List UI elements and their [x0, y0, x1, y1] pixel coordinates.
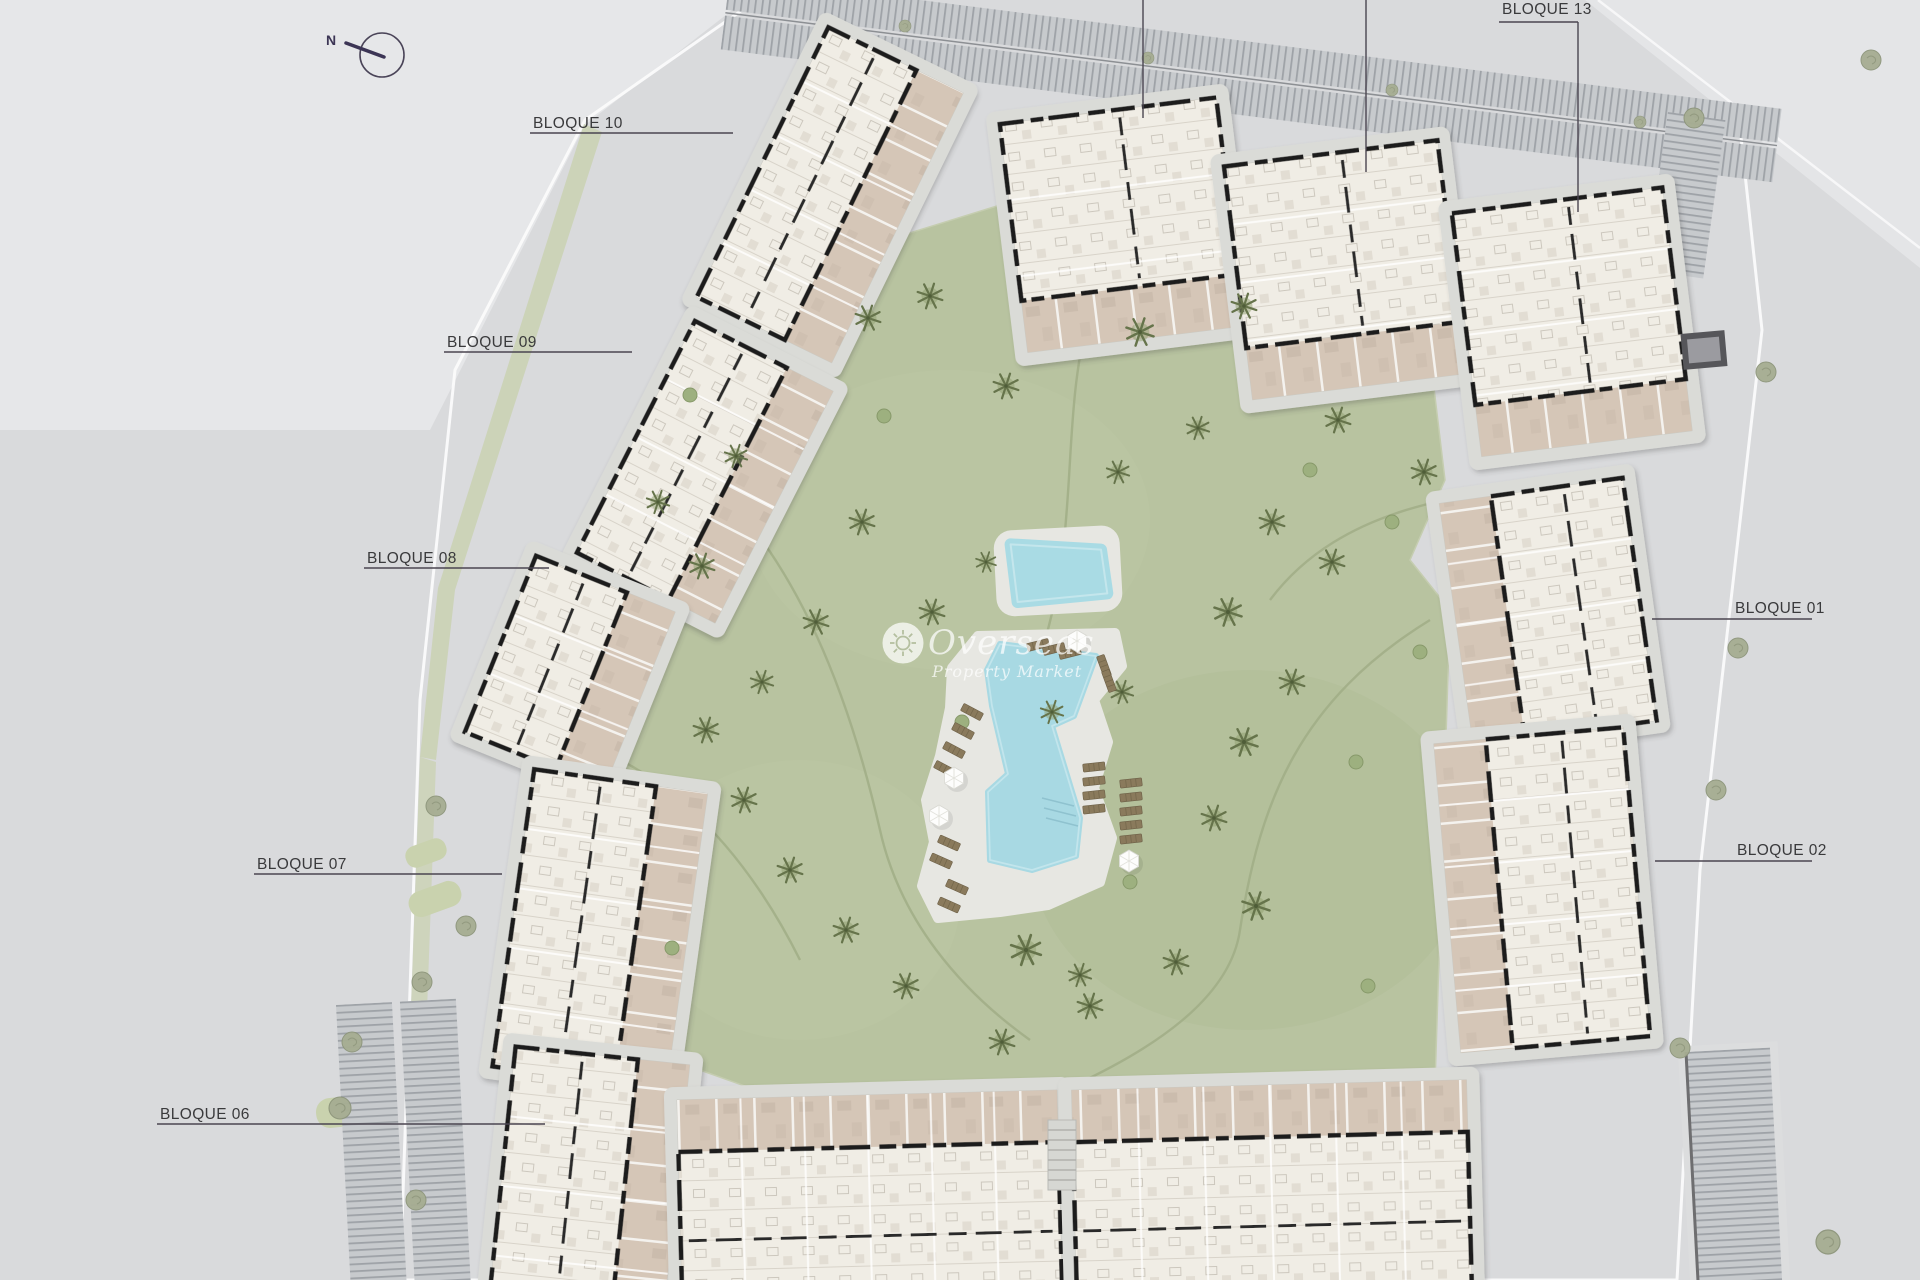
tree-icon	[426, 796, 446, 816]
tree-icon	[1756, 362, 1776, 382]
label-text-bloque-13: BLOQUE 13	[1502, 1, 1592, 18]
building-top-row-2	[1209, 126, 1480, 414]
tree-icon	[406, 1190, 426, 1210]
building-bloque-02	[1420, 713, 1664, 1067]
building-bloque-01	[1425, 463, 1672, 761]
bush-icon	[1303, 463, 1317, 477]
building-bottom-1	[664, 1077, 1077, 1280]
utility-structure	[1681, 330, 1728, 370]
label-text-bloque-01: BLOQUE 01	[1735, 600, 1825, 617]
tree-icon	[1670, 1038, 1690, 1058]
watermark-tagline: Property Market	[931, 662, 1082, 681]
label-text-bloque-10: BLOQUE 10	[533, 115, 623, 132]
tree-icon	[1386, 84, 1398, 96]
tree-icon	[342, 1032, 362, 1052]
building-top-row-1	[985, 83, 1258, 367]
tree-icon	[1142, 52, 1154, 64]
watermark-sun-icon	[883, 623, 924, 664]
parking-ramp-bottom-right	[1678, 1041, 1791, 1280]
small-pool	[993, 525, 1123, 617]
tree-icon	[1634, 116, 1646, 128]
tree-icon	[329, 1097, 351, 1119]
tree-icon	[1816, 1230, 1840, 1254]
site-plan-image: Overseas Property Market BLOQUE 13BLOQUE…	[0, 0, 1920, 1280]
tree-icon	[1684, 108, 1704, 128]
building-bottom-2	[1058, 1067, 1486, 1280]
bush-icon	[877, 409, 891, 423]
stairs-bottom-center	[1048, 1120, 1076, 1190]
bush-icon	[665, 941, 679, 955]
bush-icon	[1361, 979, 1375, 993]
building-bloque-13	[1437, 173, 1706, 471]
bush-icon	[1349, 755, 1363, 769]
watermark-brand: Overseas	[928, 623, 1095, 663]
bush-icon	[1413, 645, 1427, 659]
tree-icon	[1728, 638, 1748, 658]
label-text-bloque-09: BLOQUE 09	[447, 334, 537, 351]
tree-icon	[412, 972, 432, 992]
label-text-bloque-08: BLOQUE 08	[367, 550, 457, 567]
label-text-bloque-06: BLOQUE 06	[160, 1106, 250, 1123]
bush-icon	[1385, 515, 1399, 529]
compass-north-label: N	[326, 32, 336, 48]
bush-icon	[1123, 875, 1137, 889]
label-text-bloque-07: BLOQUE 07	[257, 856, 347, 873]
label-text-bloque-02: BLOQUE 02	[1737, 842, 1827, 859]
bush-icon	[683, 388, 697, 402]
tree-icon	[1861, 50, 1881, 70]
tree-icon	[899, 20, 911, 32]
tree-icon	[456, 916, 476, 936]
tree-icon	[1706, 780, 1726, 800]
masterplan-svg: Overseas Property Market BLOQUE 13BLOQUE…	[0, 0, 1920, 1280]
